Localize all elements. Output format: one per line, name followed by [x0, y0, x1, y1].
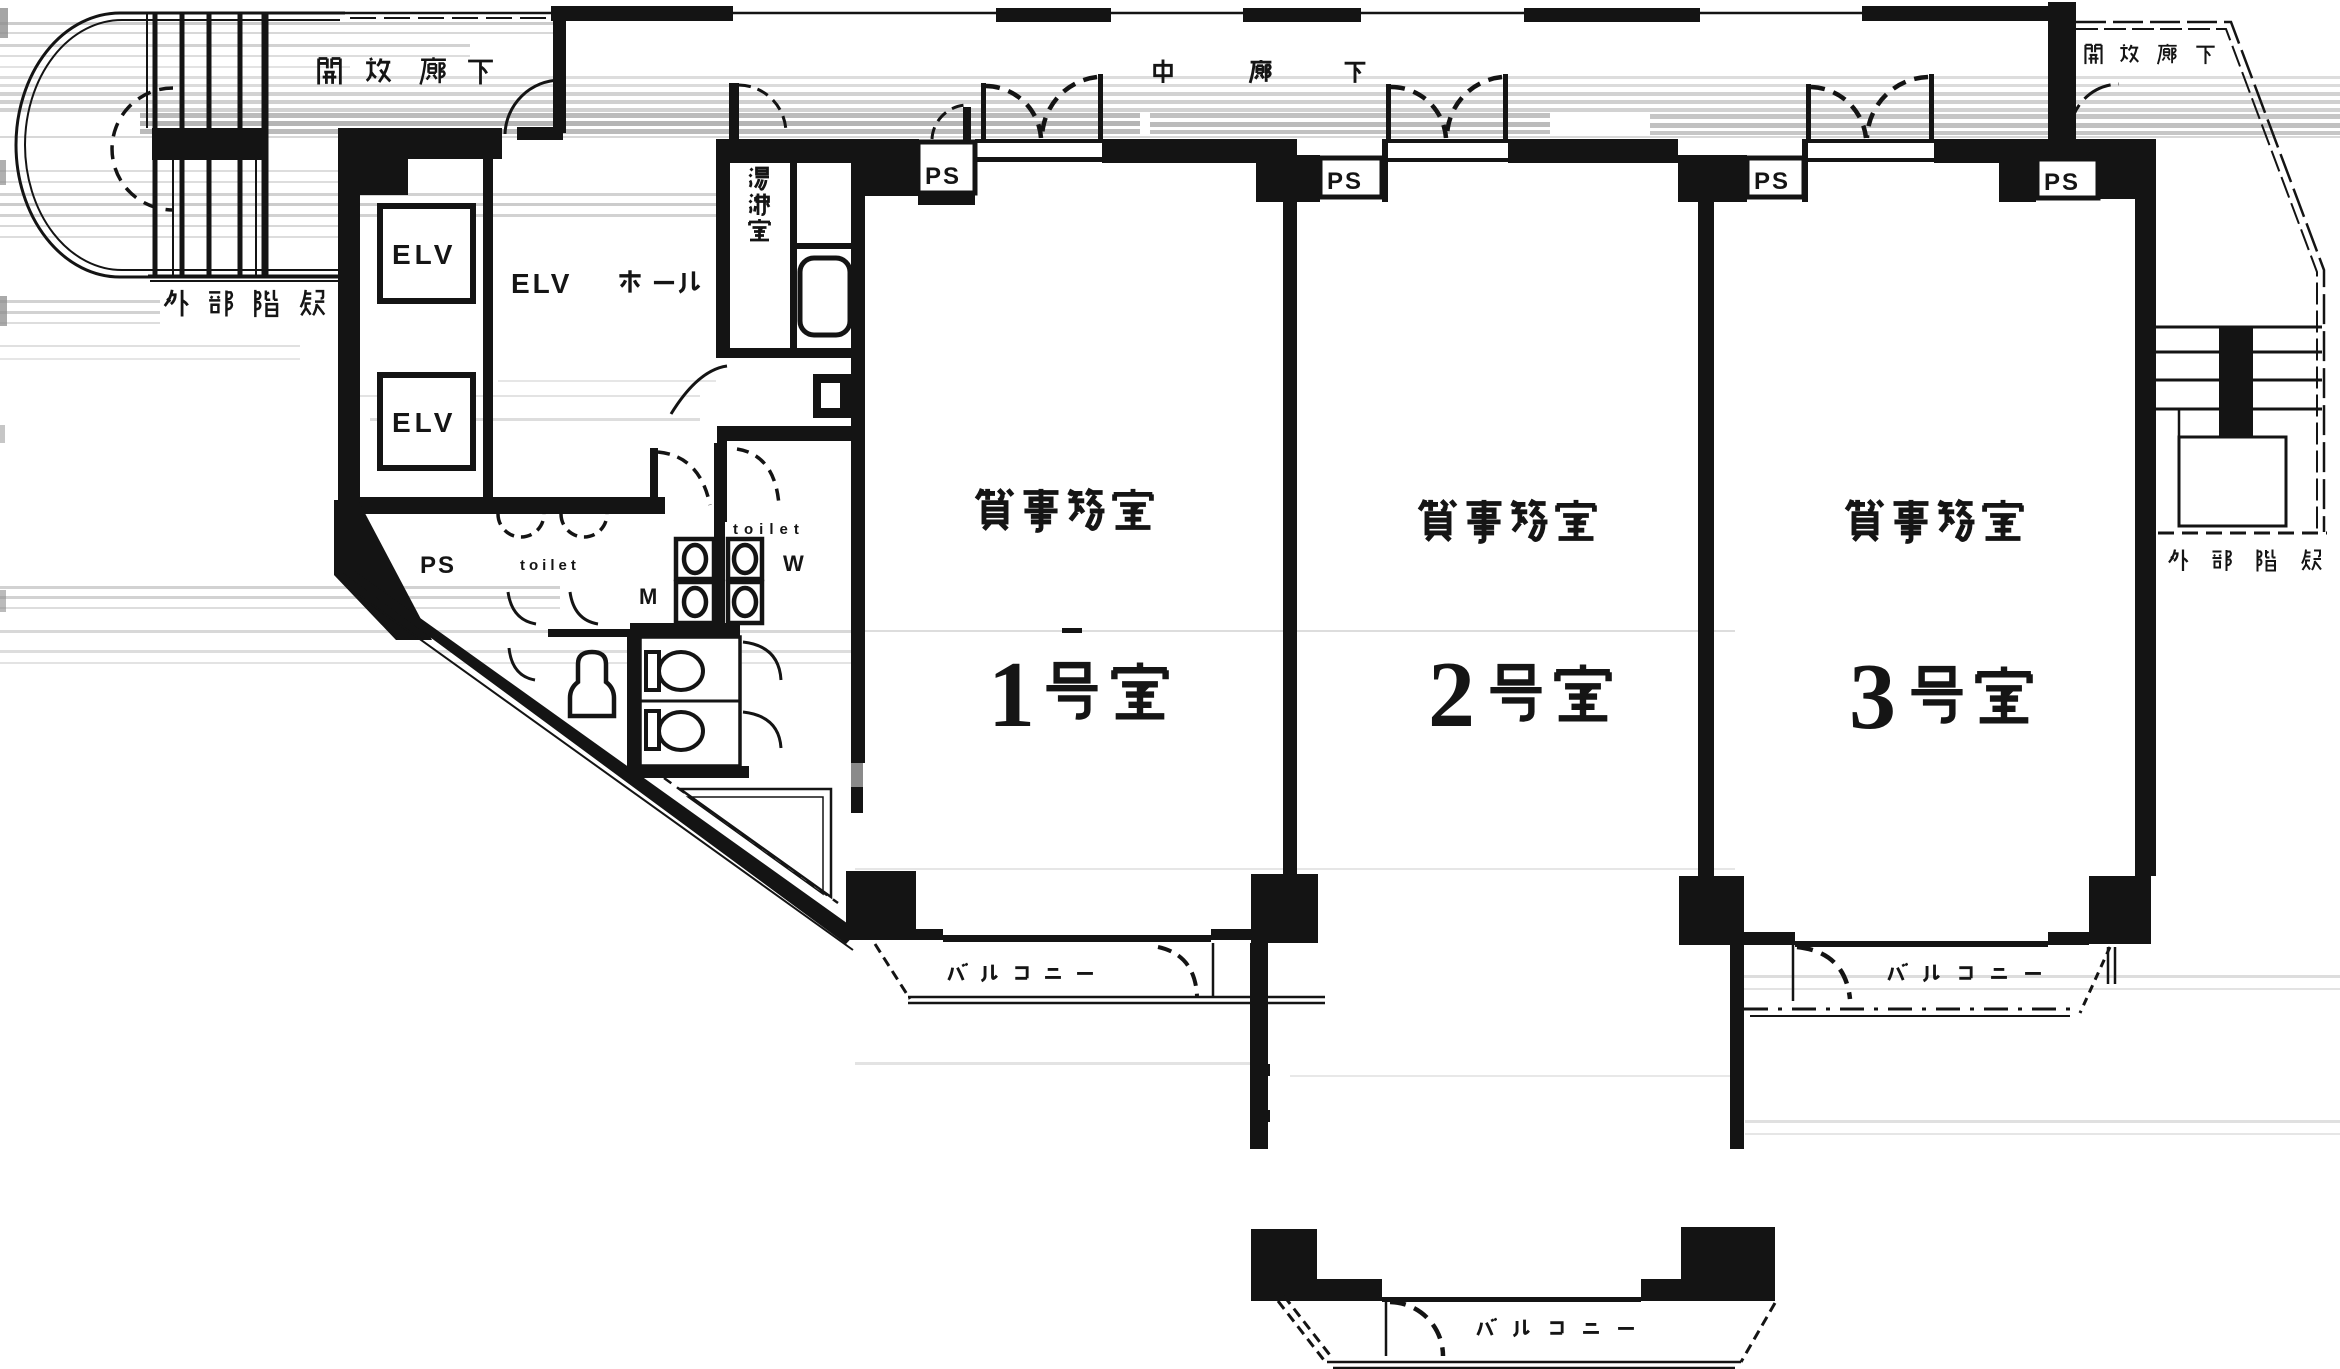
- svg-text:ELV: ELV: [511, 268, 572, 299]
- svg-text:3: 3: [1849, 645, 1896, 749]
- svg-text:2: 2: [1428, 643, 1475, 747]
- svg-text:W: W: [783, 551, 804, 576]
- svg-text:PS: PS: [420, 552, 456, 579]
- svg-text:M: M: [639, 584, 657, 609]
- svg-text:ELV: ELV: [392, 239, 456, 270]
- svg-text:PS: PS: [1754, 168, 1790, 195]
- svg-text:PS: PS: [925, 163, 961, 190]
- svg-text:1: 1: [988, 643, 1035, 747]
- svg-text:PS: PS: [2044, 169, 2080, 196]
- svg-text:ELV: ELV: [392, 407, 456, 438]
- svg-text:toilet: toilet: [520, 557, 580, 574]
- svg-text:toilet: toilet: [733, 521, 805, 538]
- svg-text:PS: PS: [1327, 168, 1363, 195]
